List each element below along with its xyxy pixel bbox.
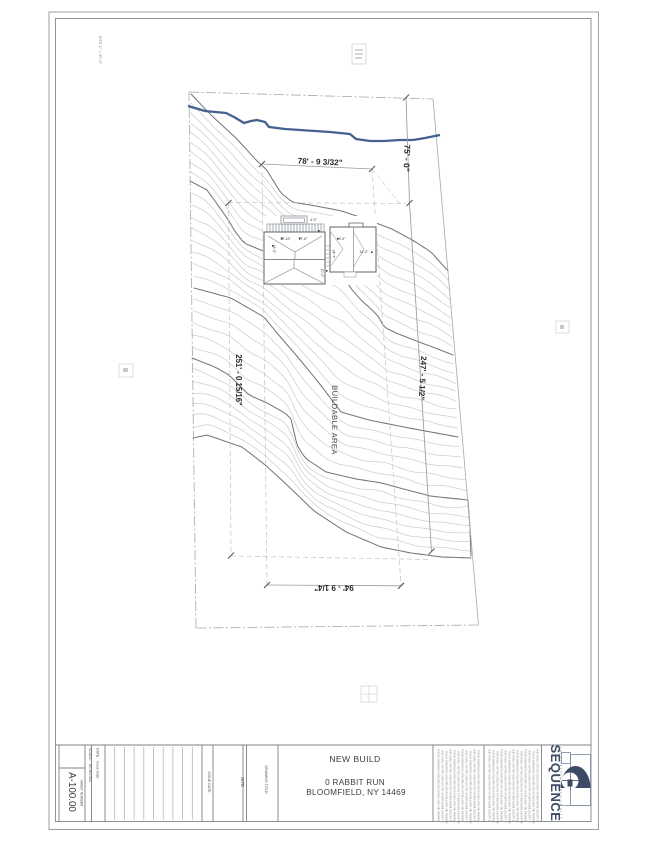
svg-text:SHEET NUMBER: SHEET NUMBER xyxy=(80,780,84,807)
svg-text:78' - 9 3/32": 78' - 9 3/32" xyxy=(297,157,342,168)
svg-text:NEW BUILD: NEW BUILD xyxy=(329,754,380,764)
svg-text:AND SHALL NOT BE USED ON ANY O: AND SHALL NOT BE USED ON ANY OTHER WORK … xyxy=(465,750,468,823)
svg-text:THESE DRAWINGS AND SPECIFICATI: THESE DRAWINGS AND SPECIFICATIONS ARE TH… xyxy=(492,750,495,823)
svg-text:24'-7": 24'-7" xyxy=(332,250,336,259)
svg-text:DRAWING TITLE:: DRAWING TITLE: xyxy=(264,766,268,795)
svg-text:THESE DRAWINGS AND SPECIFICATI: THESE DRAWINGS AND SPECIFICATIONS ARE TH… xyxy=(516,750,519,823)
svg-text:THESE DRAWINGS AND SPECIFICATI: THESE DRAWINGS AND SPECIFICATIONS ARE TH… xyxy=(477,750,480,823)
svg-text:DATE: Issue Date: DATE: Issue Date xyxy=(96,748,100,779)
svg-text:SITE 1" = 30'-0": SITE 1" = 30'-0" xyxy=(98,36,103,65)
svg-text:AND SHALL NOT BE USED ON ANY O: AND SHALL NOT BE USED ON ANY OTHER WORK … xyxy=(512,749,515,822)
svg-text:AND SHALL NOT BE USED ON ANY O: AND SHALL NOT BE USED ON ANY OTHER WORK … xyxy=(528,750,531,823)
svg-text:AND SHALL NOT BE USED ON ANY O: AND SHALL NOT BE USED ON ANY OTHER WORK … xyxy=(441,750,444,823)
svg-text:THESE DRAWINGS AND SPECIFICATI: THESE DRAWINGS AND SPECIFICATIONS ARE TH… xyxy=(524,749,527,822)
svg-text:THESE DRAWINGS AND SPECIFICATI: THESE DRAWINGS AND SPECIFICATIONS ARE TH… xyxy=(461,749,464,822)
svg-text:AND SHALL NOT BE USED ON ANY O: AND SHALL NOT BE USED ON ANY OTHER WORK … xyxy=(449,749,452,822)
svg-text:94' - 9 1/4": 94' - 9 1/4" xyxy=(314,583,354,592)
svg-text:0 RABBIT RUN: 0 RABBIT RUN xyxy=(325,778,385,787)
svg-text:ISSUE DATE: ISSUE DATE xyxy=(207,771,211,793)
svg-text:AND SHALL NOT BE USED ON ANY O: AND SHALL NOT BE USED ON ANY OTHER WORK … xyxy=(536,749,539,822)
svg-text:THESE DRAWINGS AND SPECIFICATI: THESE DRAWINGS AND SPECIFICATIONS ARE TH… xyxy=(453,750,456,823)
svg-text:THESE DRAWINGS AND SPECIFICATI: THESE DRAWINGS AND SPECIFICATIONS ARE TH… xyxy=(500,749,503,822)
svg-text:9'-0": 9'-0" xyxy=(339,237,347,241)
svg-text:41'-0": 41'-0" xyxy=(360,250,369,254)
svg-text:AND SHALL NOT BE USED ON ANY O: AND SHALL NOT BE USED ON ANY OTHER WORK … xyxy=(496,751,499,824)
svg-text:AND SHALL NOT BE USED ON ANY O: AND SHALL NOT BE USED ON ANY OTHER WORK … xyxy=(504,750,507,823)
svg-text:SITE: SITE xyxy=(240,777,245,787)
svg-text:A-100.00: A-100.00 xyxy=(66,772,77,812)
svg-text:THESE DRAWINGS AND SPECIFICATI: THESE DRAWINGS AND SPECIFICATIONS ARE TH… xyxy=(437,749,440,822)
svg-text:4'-0": 4'-0" xyxy=(310,218,318,222)
svg-text:251' - 0 15/16": 251' - 0 15/16" xyxy=(234,354,243,406)
svg-text:AND SHALL NOT BE USED ON ANY O: AND SHALL NOT BE USED ON ANY OTHER WORK … xyxy=(520,751,523,824)
svg-text:THESE DRAWINGS AND SPECIFICATI: THESE DRAWINGS AND SPECIFICATIONS ARE TH… xyxy=(508,751,511,824)
svg-text:THESE DRAWINGS AND SPECIFICATI: THESE DRAWINGS AND SPECIFICATIONS ARE TH… xyxy=(469,751,472,824)
svg-text:75' - 0": 75' - 0" xyxy=(402,144,413,172)
svg-text:SCALE: AS NOTED: SCALE: AS NOTED xyxy=(88,748,92,783)
svg-text:THESE DRAWINGS AND SPECIFICATI: THESE DRAWINGS AND SPECIFICATIONS ARE TH… xyxy=(532,751,535,824)
svg-text:20'-0": 20'-0" xyxy=(320,269,324,278)
svg-text:THESE DRAWINGS AND SPECIFICATI: THESE DRAWINGS AND SPECIFICATIONS ARE TH… xyxy=(445,751,448,824)
svg-text:BLOOMFIELD, NY 14469: BLOOMFIELD, NY 14469 xyxy=(306,788,406,797)
svg-text:AND SHALL NOT BE USED ON ANY O: AND SHALL NOT BE USED ON ANY OTHER WORK … xyxy=(488,749,491,822)
svg-text:BUILDABLE AREA: BUILDABLE AREA xyxy=(330,385,340,455)
svg-text:AND SHALL NOT BE USED ON ANY O: AND SHALL NOT BE USED ON ANY OTHER WORK … xyxy=(457,751,460,824)
svg-text:AND SHALL NOT BE USED ON ANY O: AND SHALL NOT BE USED ON ANY OTHER WORK … xyxy=(473,749,476,822)
